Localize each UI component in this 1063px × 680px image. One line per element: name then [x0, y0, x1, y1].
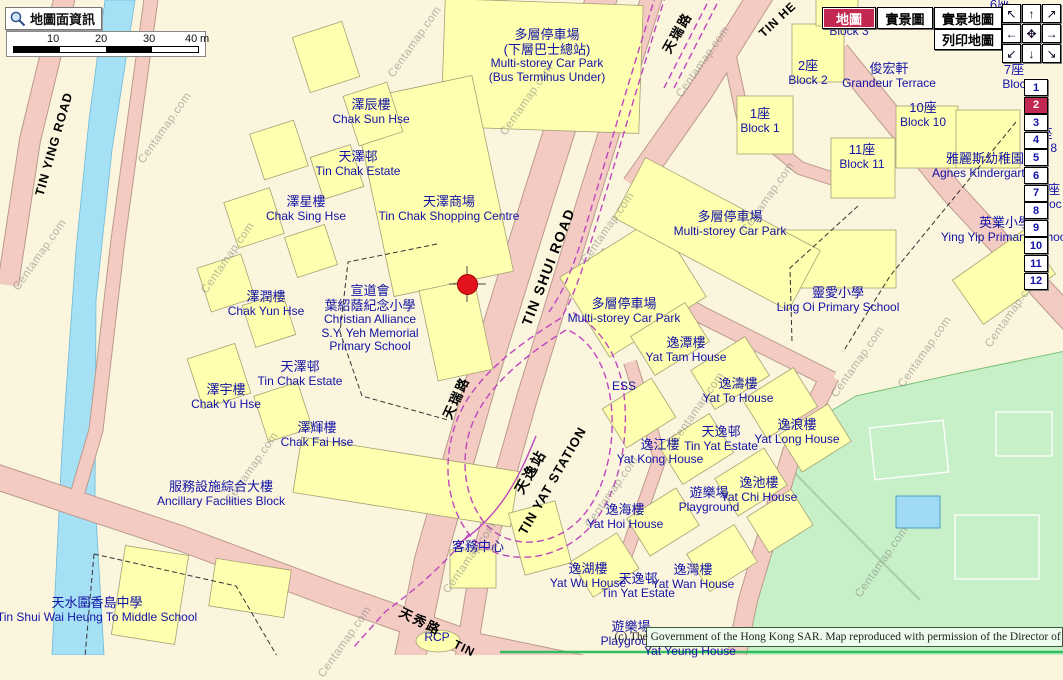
- scale-unit: m: [200, 33, 209, 45]
- view-button-print-map[interactable]: 列印地圖: [934, 29, 1002, 50]
- map-info-button[interactable]: 地圖面資訊: [5, 7, 102, 30]
- scale-tick-20: 20: [95, 33, 107, 45]
- floor-button-2[interactable]: 2: [1024, 97, 1048, 114]
- pan-up-left-button[interactable]: ↖: [1002, 4, 1021, 23]
- floor-button-12[interactable]: 12: [1024, 273, 1048, 290]
- pan-left-button[interactable]: ←: [1002, 24, 1021, 43]
- pan-center-button[interactable]: ✥: [1022, 24, 1041, 43]
- view-button-map[interactable]: 地圖: [822, 7, 876, 29]
- view-button-street-photo[interactable]: 實景圖: [877, 7, 933, 29]
- floor-button-1[interactable]: 1: [1024, 79, 1048, 96]
- scale-bar: 10 20 30 40 m: [6, 31, 206, 57]
- floor-button-5[interactable]: 5: [1024, 149, 1048, 166]
- floor-button-7[interactable]: 7: [1024, 185, 1048, 202]
- floor-button-9[interactable]: 9: [1024, 220, 1048, 237]
- map-canvas[interactable]: Centamap.comCentamap.comCentamap.comCent…: [0, 0, 1063, 655]
- view-button-photo-map[interactable]: 實景地圖: [934, 7, 1002, 29]
- pan-up-button[interactable]: ↑: [1022, 4, 1041, 23]
- location-marker: [457, 274, 478, 295]
- floor-button-4[interactable]: 4: [1024, 132, 1048, 149]
- floor-button-8[interactable]: 8: [1024, 202, 1048, 219]
- pan-right-button[interactable]: →: [1042, 24, 1061, 43]
- pan-down-left-button[interactable]: ↙: [1002, 44, 1021, 63]
- floor-button-3[interactable]: 3: [1024, 114, 1048, 131]
- scale-tick-40: 40: [185, 33, 197, 45]
- map-info-label: 地圖面資訊: [30, 9, 95, 28]
- pan-down-right-button[interactable]: ↘: [1042, 44, 1061, 63]
- map-base-graphics: [0, 0, 1063, 655]
- scale-tick-10: 10: [47, 33, 59, 45]
- scale-bar-segments: [13, 46, 199, 53]
- floor-button-6[interactable]: 6: [1024, 167, 1048, 184]
- pan-down-button[interactable]: ↓: [1022, 44, 1041, 63]
- magnifier-icon: [9, 10, 27, 28]
- floor-button-10[interactable]: 10: [1024, 237, 1048, 254]
- pan-up-right-button[interactable]: ↗: [1042, 4, 1061, 23]
- pan-navigation-pad: ↖ ↑ ↗ ← ✥ → ↙ ↓ ↘: [1002, 4, 1061, 63]
- copyright-notice: (c) The Government of the Hong Kong SAR.…: [646, 627, 1063, 647]
- floor-button-11[interactable]: 11: [1024, 255, 1048, 272]
- scale-tick-30: 30: [143, 33, 155, 45]
